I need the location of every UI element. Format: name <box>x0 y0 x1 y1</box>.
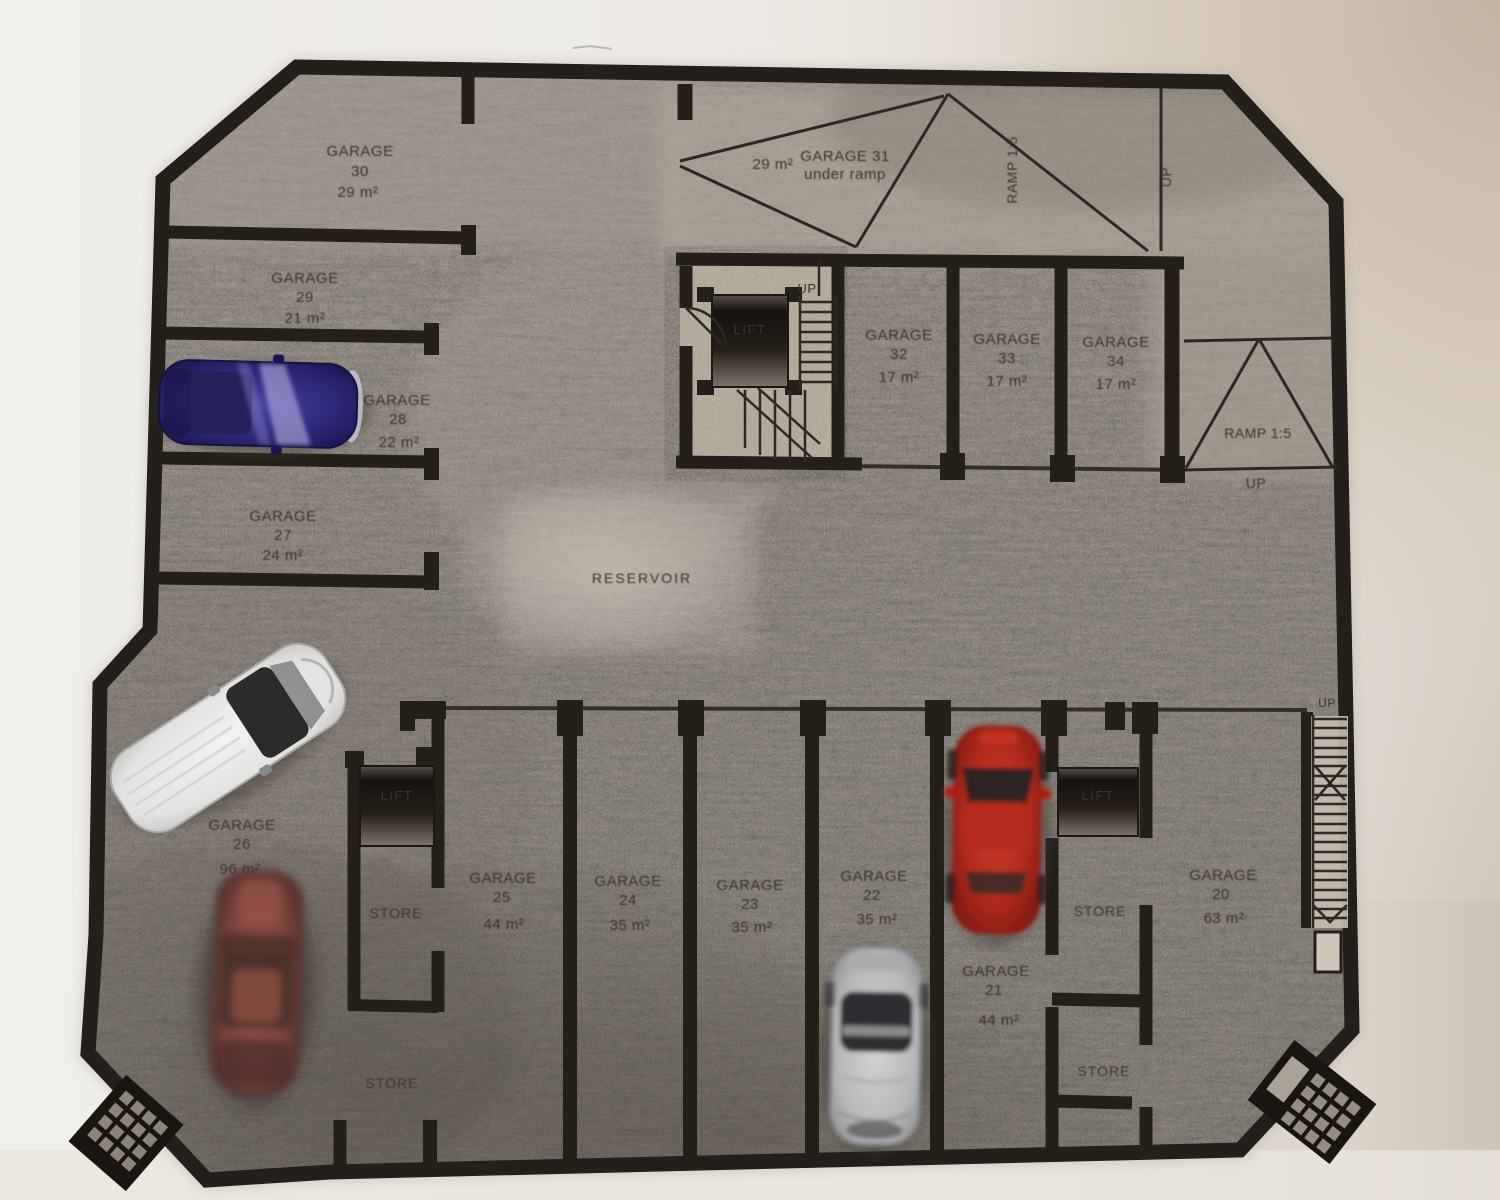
svg-text:GARAGE: GARAGE <box>1082 334 1149 351</box>
svg-text:GARAGE: GARAGE <box>271 270 338 287</box>
svg-text:RAMP 1:5: RAMP 1:5 <box>1004 136 1020 204</box>
svg-text:24: 24 <box>619 892 637 909</box>
svg-text:33: 33 <box>998 350 1016 367</box>
svg-text:UP: UP <box>1158 167 1174 187</box>
svg-text:GARAGE: GARAGE <box>840 868 907 885</box>
svg-text:21: 21 <box>985 982 1003 999</box>
svg-text:RESERVOIR: RESERVOIR <box>592 570 692 586</box>
svg-text:17 m²: 17 m² <box>987 373 1028 390</box>
svg-text:22 m²: 22 m² <box>379 434 420 451</box>
svg-text:GARAGE: GARAGE <box>962 963 1029 980</box>
svg-text:GARAGE: GARAGE <box>208 817 275 834</box>
svg-text:LIFT: LIFT <box>734 322 767 337</box>
svg-text:STORE: STORE <box>366 1075 419 1091</box>
svg-text:GARAGE: GARAGE <box>326 143 393 160</box>
svg-text:UP: UP <box>1246 475 1266 491</box>
svg-text:GARAGE: GARAGE <box>363 392 430 409</box>
svg-text:21 m²: 21 m² <box>285 310 326 327</box>
svg-text:22: 22 <box>863 887 881 904</box>
svg-text:34: 34 <box>1107 353 1125 370</box>
svg-text:44 m²: 44 m² <box>484 916 525 933</box>
svg-text:29 m²: 29 m² <box>338 184 379 201</box>
svg-text:GARAGE: GARAGE <box>249 508 316 525</box>
svg-text:20: 20 <box>1212 886 1230 903</box>
svg-text:17 m²: 17 m² <box>879 369 920 386</box>
svg-text:32: 32 <box>890 346 908 363</box>
svg-text:STORE: STORE <box>370 905 423 921</box>
svg-text:GARAGE: GARAGE <box>594 873 661 890</box>
svg-text:23: 23 <box>741 896 759 913</box>
svg-text:44 m²: 44 m² <box>979 1012 1020 1029</box>
svg-text:GARAGE: GARAGE <box>716 877 783 894</box>
svg-text:17 m²: 17 m² <box>1096 376 1137 393</box>
svg-text:under ramp: under ramp <box>804 166 886 183</box>
svg-text:24 m²: 24 m² <box>263 547 304 564</box>
svg-text:UP: UP <box>1318 696 1336 710</box>
svg-text:29 m²: 29 m² <box>753 156 794 173</box>
svg-text:35 m²: 35 m² <box>610 917 651 934</box>
svg-text:GARAGE: GARAGE <box>1189 867 1256 884</box>
svg-text:28: 28 <box>389 411 407 428</box>
svg-text:29: 29 <box>296 289 314 306</box>
svg-text:35 m²: 35 m² <box>857 911 898 928</box>
svg-text:GARAGE: GARAGE <box>865 327 932 344</box>
svg-text:63 m²: 63 m² <box>1204 910 1245 927</box>
svg-text:LIFT: LIFT <box>1082 788 1115 803</box>
svg-text:GARAGE: GARAGE <box>469 870 536 887</box>
svg-text:STORE: STORE <box>1078 1063 1131 1079</box>
svg-text:26: 26 <box>233 836 251 853</box>
svg-text:35 m²: 35 m² <box>732 919 773 936</box>
svg-text:GARAGE: GARAGE <box>973 331 1040 348</box>
svg-text:27: 27 <box>274 527 292 544</box>
svg-text:STORE: STORE <box>1074 903 1127 919</box>
svg-text:UP: UP <box>797 281 816 296</box>
svg-text:RAMP 1:5: RAMP 1:5 <box>1224 425 1292 441</box>
svg-text:GARAGE 31: GARAGE 31 <box>800 148 890 165</box>
svg-text:25: 25 <box>493 889 511 906</box>
svg-text:30: 30 <box>351 163 369 180</box>
svg-text:LIFT: LIFT <box>381 788 414 803</box>
